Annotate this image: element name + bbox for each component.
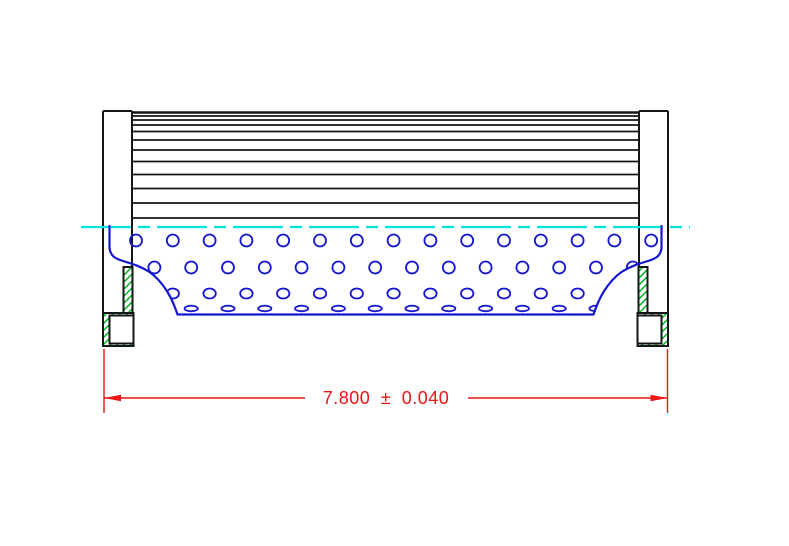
pleated-media — [132, 113, 639, 219]
dimension-annotation: 7.800 ± 0.040 — [104, 349, 668, 413]
perforation-hole — [535, 235, 547, 247]
perforation-hole — [167, 235, 179, 247]
dimension-arrow — [651, 395, 668, 401]
perforation-hole — [516, 262, 528, 274]
perforation-hole — [204, 235, 216, 247]
perforation-hole — [608, 289, 620, 299]
dimension-arrow — [104, 395, 121, 401]
perforation-hole — [314, 289, 326, 299]
perforated-core — [110, 226, 662, 315]
perforation-hole — [424, 235, 436, 247]
cap-hatch — [639, 267, 648, 313]
cap-edge — [638, 316, 662, 344]
perforation-hole — [498, 235, 510, 247]
perforation-hole — [240, 289, 252, 299]
perforation-hole — [406, 262, 418, 274]
perforation-hole — [222, 262, 234, 274]
perforation-hole — [442, 306, 455, 312]
core-profile — [110, 226, 662, 315]
perforation-hole — [277, 235, 289, 247]
right-end-cap — [638, 111, 669, 346]
perforation-hole — [259, 262, 271, 274]
perforation-hole — [645, 235, 657, 247]
perforation-hole — [498, 289, 510, 299]
perforation-holes — [130, 235, 658, 312]
perforation-hole — [369, 262, 381, 274]
perforation-hole — [590, 262, 602, 274]
perforation-hole — [535, 289, 547, 299]
cap-edge — [110, 316, 134, 344]
perforation-hole — [185, 306, 198, 312]
perforation-hole — [516, 306, 529, 312]
perforation-hole — [332, 262, 344, 274]
perforation-hole — [388, 235, 400, 247]
perforation-hole — [295, 306, 308, 312]
perforation-hole — [387, 289, 399, 299]
drawing-canvas: 7.800 ± 0.040 — [0, 0, 789, 546]
technical-drawing: 7.800 ± 0.040 — [0, 0, 789, 546]
perforation-hole — [443, 262, 455, 274]
perforation-hole — [461, 235, 473, 247]
perforation-hole — [479, 306, 492, 312]
perforation-hole — [405, 306, 418, 312]
perforation-hole — [369, 306, 382, 312]
perforation-hole — [553, 262, 565, 274]
perforation-hole — [314, 235, 326, 247]
perforation-hole — [240, 235, 252, 247]
perforation-hole — [608, 235, 620, 247]
perforation-hole — [203, 289, 215, 299]
perforation-hole — [572, 235, 584, 247]
perforation-hole — [351, 289, 363, 299]
cap-hatch — [124, 267, 133, 313]
perforation-hole — [424, 289, 436, 299]
perforation-hole — [148, 306, 161, 312]
perforation-hole — [277, 289, 289, 299]
dimension-text: 7.800 ± 0.040 — [323, 388, 449, 408]
perforation-hole — [221, 306, 234, 312]
perforation-hole — [461, 289, 473, 299]
perforation-hole — [553, 306, 566, 312]
perforation-hole — [480, 262, 492, 274]
perforation-hole — [258, 306, 271, 312]
cap-hatch-frame — [638, 313, 669, 346]
perforation-hole — [332, 306, 345, 312]
perforation-hole — [185, 262, 197, 274]
perforation-hole — [351, 235, 363, 247]
perforation-hole — [571, 289, 583, 299]
cap-hatch-frame — [103, 313, 134, 346]
left-end-cap — [103, 111, 134, 346]
perforation-hole — [626, 306, 639, 312]
perforation-hole — [296, 262, 308, 274]
